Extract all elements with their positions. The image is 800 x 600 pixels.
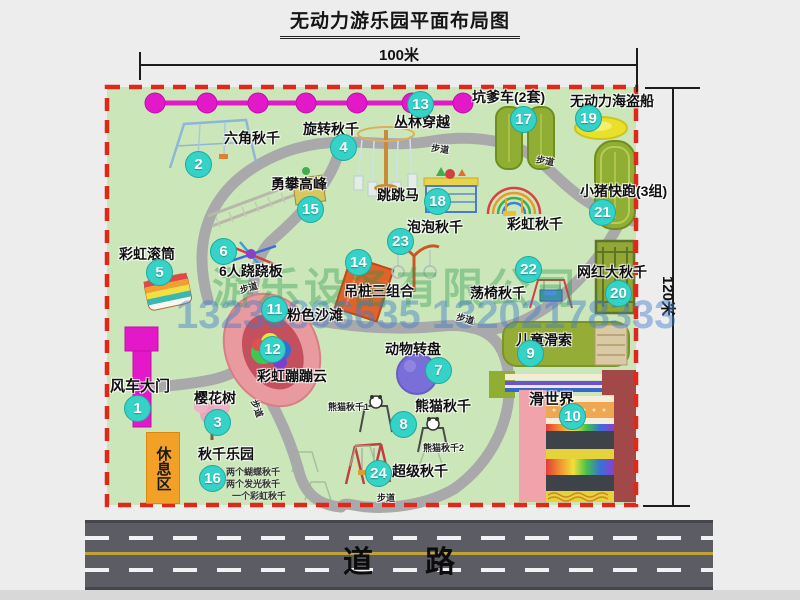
- swing-park-detail-1: 两个蝴蝶秋千: [226, 466, 286, 478]
- badge-11: 11: [261, 296, 288, 323]
- label-windmill-gate: 风车大门: [110, 379, 170, 396]
- badge-15: 15: [297, 196, 324, 223]
- badge-2: 2: [185, 151, 212, 178]
- label-hexagon-swing: 六角秋千: [224, 131, 280, 146]
- label-seesaw: 6人跷跷板: [219, 264, 283, 279]
- badge-4: 4: [330, 134, 357, 161]
- badge-3: 3: [204, 409, 231, 436]
- label-big-swing: 网红大秋千: [577, 265, 647, 280]
- height-dimension-label: 120米: [658, 276, 679, 316]
- label-cherry-tree: 樱花树: [194, 391, 236, 406]
- badge-23: 23: [387, 228, 414, 255]
- rest-area: 休息区: [146, 432, 180, 504]
- badge-14: 14: [345, 249, 372, 276]
- label-hanging-piles: 吊桩三组合: [344, 284, 414, 299]
- label-chair-swing: 荡椅秋千: [470, 286, 526, 301]
- road-lower-shoulder: [0, 590, 800, 600]
- label-super-swing: 超级秋千: [392, 464, 448, 479]
- width-dimension-label: 100米: [379, 44, 419, 65]
- badge-7: 7: [425, 357, 452, 384]
- path-label-4: 步道: [377, 494, 395, 504]
- label-animal-carousel: 动物转盘: [385, 342, 441, 357]
- label-panda-swing-2: 熊猫秋千2: [423, 444, 464, 454]
- badge-5: 5: [146, 259, 173, 286]
- swing-park-details: 两个蝴蝶秋千 两个发光秋千 一个彩虹秋千: [226, 466, 286, 502]
- badge-8: 8: [390, 411, 417, 438]
- label-bounce-cloud: 彩虹蹦蹦云: [257, 369, 327, 384]
- badge-10: 10: [559, 403, 586, 430]
- label-swing-park: 秋千乐园: [198, 447, 254, 462]
- badge-16: 16: [199, 465, 226, 492]
- badge-13: 13: [407, 91, 434, 118]
- badge-17: 17: [510, 106, 537, 133]
- page-title: 无动力游乐园平面布局图: [280, 6, 520, 39]
- label-jumping-horse: 跳跳马: [377, 188, 419, 203]
- label-panda-swing: 熊猫秋千: [415, 399, 471, 414]
- badge-21: 21: [589, 199, 616, 226]
- badge-19: 19: [575, 105, 602, 132]
- badge-22: 22: [515, 256, 542, 283]
- badge-9: 9: [517, 340, 544, 367]
- road-label: 道路: [85, 537, 713, 581]
- badge-1: 1: [124, 395, 151, 422]
- park-map-graphic: [0, 0, 800, 600]
- label-crazy-car: 坑爹车(2套): [472, 90, 545, 105]
- page-title-wrap: 无动力游乐园平面布局图: [0, 6, 800, 39]
- label-bubble-swing: 泡泡秋千: [407, 220, 463, 235]
- park-layout-screenshot: 无动力游乐园平面布局图 100米 120米 游乐设备有限公司 132338066…: [0, 0, 800, 600]
- badge-18: 18: [424, 188, 451, 215]
- badge-6: 6: [210, 238, 237, 265]
- label-panda-swing-1: 熊猫秋千1: [328, 403, 369, 413]
- swing-park-detail-3: 一个彩虹秋千: [226, 490, 286, 502]
- label-pink-beach: 粉色沙滩: [287, 308, 343, 323]
- swing-park-detail-2: 两个发光秋千: [226, 478, 286, 490]
- badge-12: 12: [259, 336, 286, 363]
- badge-24: 24: [365, 460, 392, 487]
- badge-20: 20: [605, 280, 632, 307]
- label-climbing-peak: 勇攀高峰: [271, 177, 327, 192]
- label-rainbow-swing: 彩虹秋千: [507, 217, 563, 232]
- label-pig-run: 小猪快跑(3组): [580, 184, 667, 199]
- road: 道路: [85, 520, 713, 590]
